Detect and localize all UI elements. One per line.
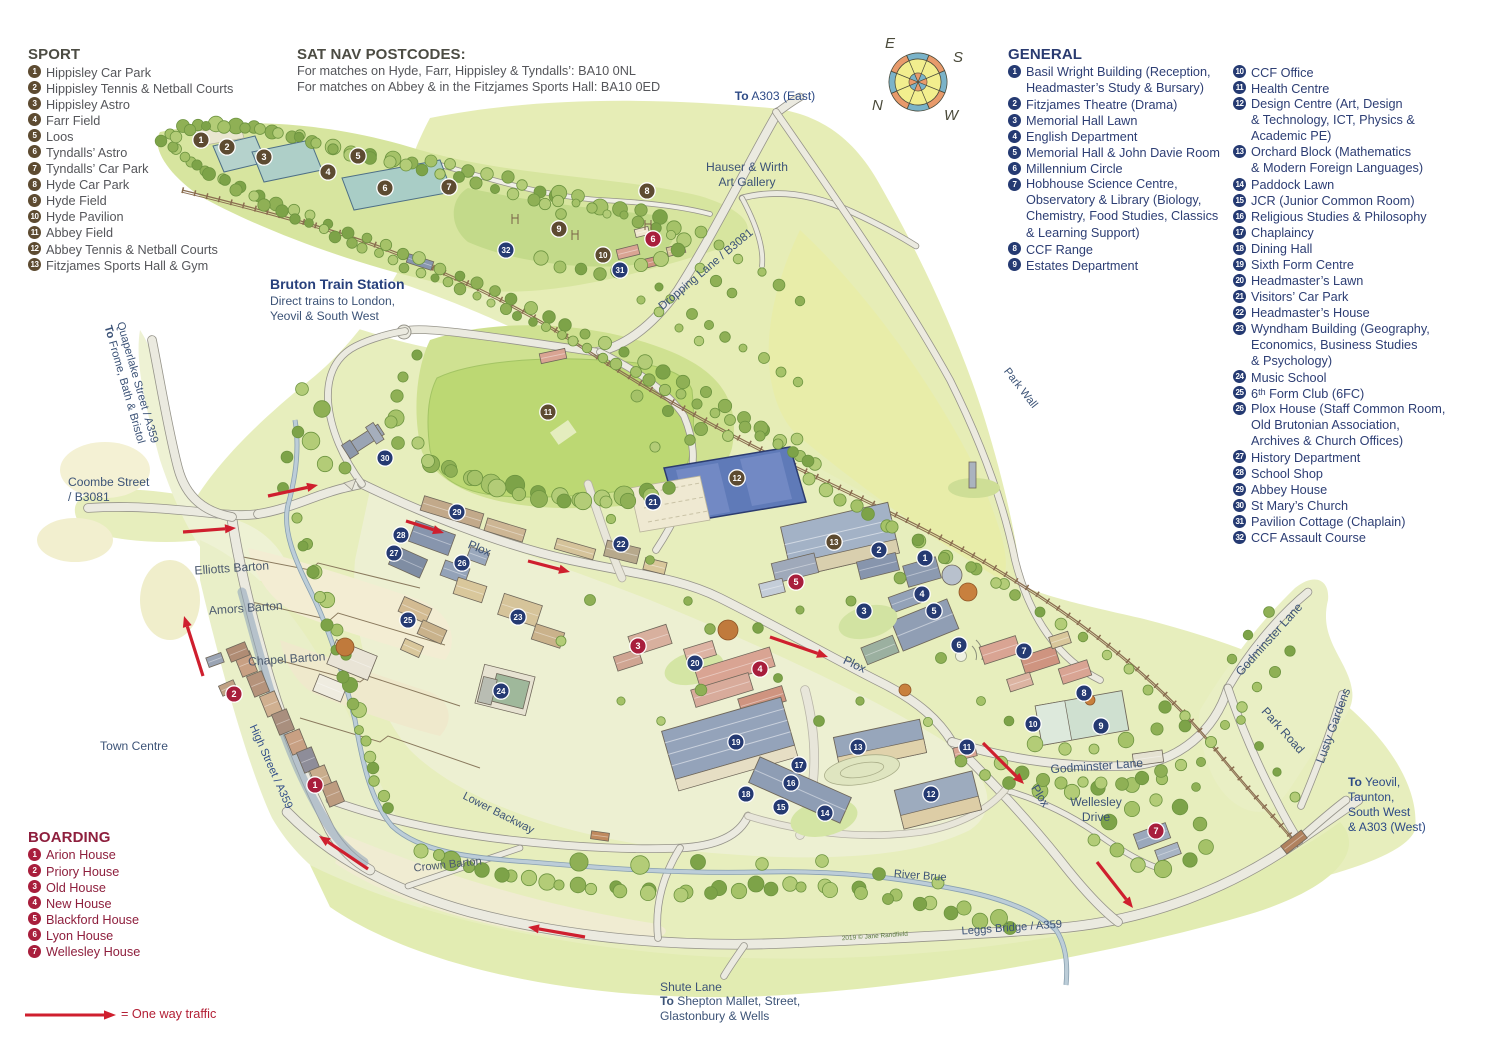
svg-text:9: 9 xyxy=(1098,721,1103,731)
svg-text:22: 22 xyxy=(617,540,626,549)
svg-text:19: 19 xyxy=(732,738,741,747)
svg-text:7: 7 xyxy=(1153,826,1158,836)
svg-text:To Yeovil,: To Yeovil, xyxy=(1348,775,1400,789)
svg-text:Bruton Train Station: Bruton Train Station xyxy=(270,276,405,292)
svg-text:25: 25 xyxy=(404,616,413,625)
svg-text:2: 2 xyxy=(231,689,236,699)
svg-text:6: 6 xyxy=(956,640,961,650)
svg-text:23: 23 xyxy=(514,613,523,622)
svg-text:1: 1 xyxy=(922,553,927,563)
svg-text:5: 5 xyxy=(355,151,360,161)
svg-text:18: 18 xyxy=(742,790,751,799)
svg-text:15: 15 xyxy=(777,803,786,812)
svg-text:21: 21 xyxy=(649,498,658,507)
svg-text:1: 1 xyxy=(198,135,203,145)
svg-text:32: 32 xyxy=(502,246,511,255)
svg-text:E: E xyxy=(885,35,896,52)
svg-text:Hauser & Wirth: Hauser & Wirth xyxy=(706,160,788,174)
svg-text:29: 29 xyxy=(453,508,462,517)
svg-text:5: 5 xyxy=(931,606,936,616)
svg-text:30: 30 xyxy=(381,454,390,463)
svg-text:South West: South West xyxy=(1348,805,1411,819)
svg-text:S: S xyxy=(953,49,963,66)
svg-text:17: 17 xyxy=(795,761,804,770)
svg-text:& A303 (West): & A303 (West) xyxy=(1348,820,1426,834)
svg-text:Wellesley: Wellesley xyxy=(1070,795,1122,809)
svg-text:3: 3 xyxy=(261,152,266,162)
svg-text:/ B3081: / B3081 xyxy=(68,490,110,504)
svg-text:5: 5 xyxy=(793,577,798,587)
svg-text:Shute Lane: Shute Lane xyxy=(660,980,722,994)
svg-text:24: 24 xyxy=(497,687,506,696)
svg-text:28: 28 xyxy=(397,531,406,540)
svg-text:9: 9 xyxy=(556,224,561,234)
svg-text:4: 4 xyxy=(919,589,924,599)
svg-text:4: 4 xyxy=(757,664,762,674)
svg-text:14: 14 xyxy=(821,809,830,818)
svg-text:Yeovil & South West: Yeovil & South West xyxy=(270,309,380,323)
svg-text:N: N xyxy=(872,97,883,114)
svg-text:16: 16 xyxy=(787,779,796,788)
svg-text:7: 7 xyxy=(1021,646,1026,656)
svg-text:31: 31 xyxy=(616,266,625,275)
svg-text:10: 10 xyxy=(1029,720,1038,729)
svg-text:13: 13 xyxy=(830,538,839,547)
svg-text:W: W xyxy=(944,107,960,124)
svg-text:2: 2 xyxy=(876,545,881,555)
svg-text:1: 1 xyxy=(312,780,317,790)
svg-text:Art Gallery: Art Gallery xyxy=(718,175,776,189)
svg-text:7: 7 xyxy=(446,182,451,192)
svg-text:20: 20 xyxy=(691,659,700,668)
svg-text:8: 8 xyxy=(1081,688,1086,698)
svg-text:Direct trains to London,: Direct trains to London, xyxy=(270,294,395,308)
svg-text:8: 8 xyxy=(644,186,649,196)
svg-text:6: 6 xyxy=(650,234,655,244)
svg-text:11: 11 xyxy=(963,743,972,752)
svg-text:27: 27 xyxy=(390,549,399,558)
svg-text:11: 11 xyxy=(544,408,553,417)
svg-text:Glastonbury & Wells: Glastonbury & Wells xyxy=(660,1009,769,1023)
svg-text:Drive: Drive xyxy=(1082,810,1110,824)
svg-text:3: 3 xyxy=(635,641,640,651)
svg-text:26: 26 xyxy=(458,559,467,568)
svg-text:12: 12 xyxy=(927,790,936,799)
svg-text:Coombe Street: Coombe Street xyxy=(68,475,150,489)
svg-text:10: 10 xyxy=(599,251,608,260)
svg-text:6: 6 xyxy=(382,183,387,193)
svg-text:To A303 (East): To A303 (East) xyxy=(735,89,815,103)
svg-text:12: 12 xyxy=(733,474,742,483)
svg-text:To Shepton Mallet, Street,: To Shepton Mallet, Street, xyxy=(660,994,800,1008)
svg-text:Town Centre: Town Centre xyxy=(100,739,168,753)
svg-text:4: 4 xyxy=(325,167,330,177)
svg-text:Taunton,: Taunton, xyxy=(1348,790,1394,804)
svg-text:2: 2 xyxy=(224,142,229,152)
svg-text:13: 13 xyxy=(854,743,863,752)
svg-text:3: 3 xyxy=(861,606,866,616)
